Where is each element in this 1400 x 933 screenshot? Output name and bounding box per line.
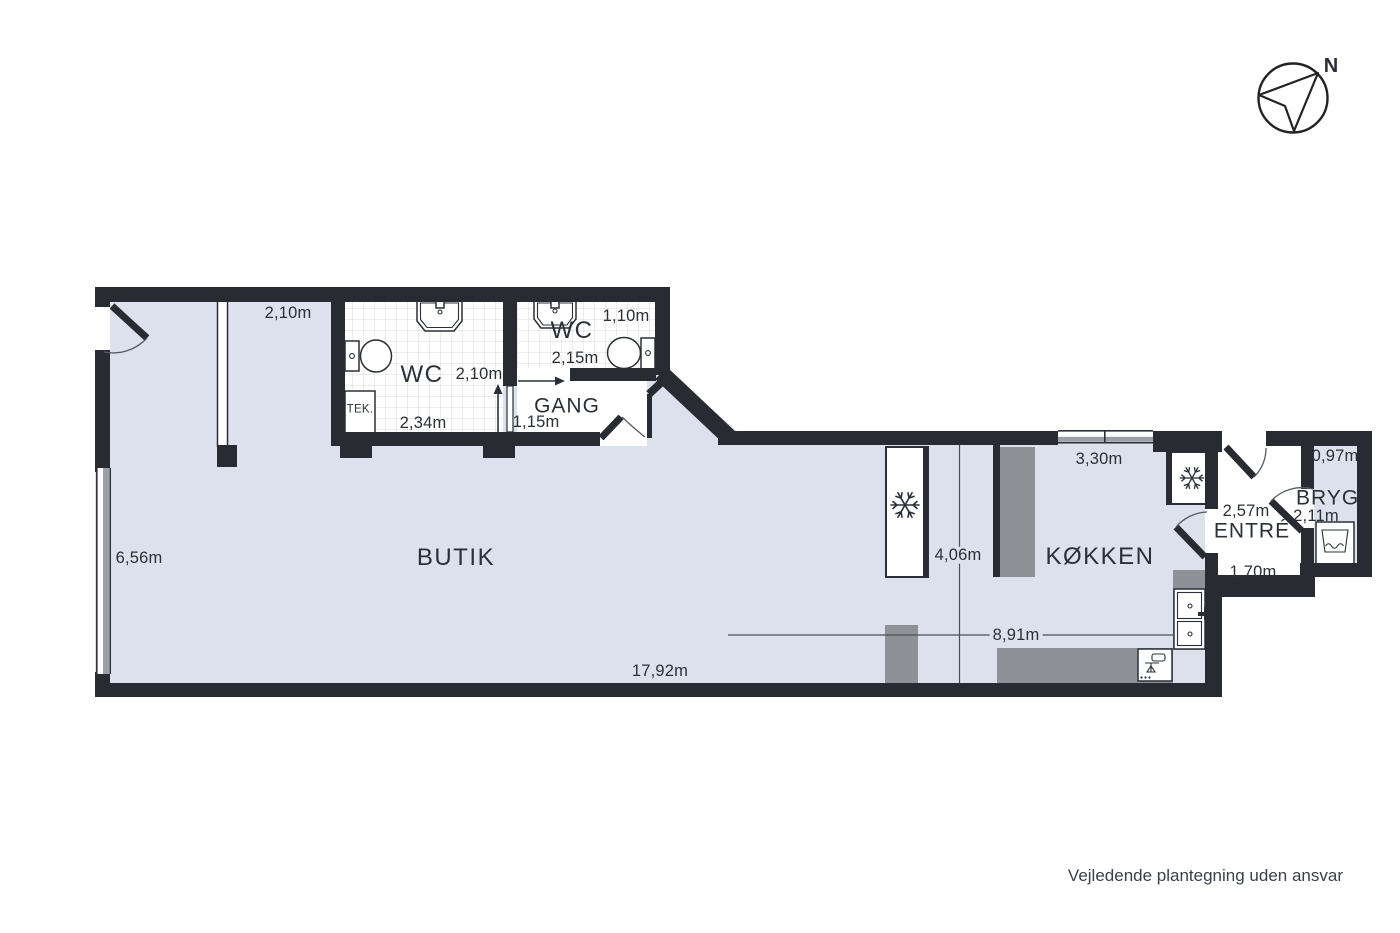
kitchen-window [1058,430,1153,444]
kitchen-partition-wall [993,442,1000,577]
pillar-b [483,446,515,458]
wc2-right-wall [655,287,670,375]
pillar-a [340,446,372,458]
floorplan-page: 2,10m WC 2,10m 2,34m TEK. WC 1,10m 2,15m… [0,0,1400,933]
room-label-bryg: BRYG. [1296,488,1366,509]
left-wall-top [95,287,110,307]
dim-entre-width: 2,57m [1223,503,1270,520]
gang-door-jamb [647,394,652,438]
kitchen-top-wall [718,431,1058,445]
compass-north-label: N [1324,56,1338,76]
butik-entry-opening [95,306,110,352]
dim-total-width: 17,92m [632,663,688,680]
left-wall-mid [95,350,110,472]
dim-entre-depth: 1,70m [1230,564,1277,581]
wc2-bottom-wall [570,368,656,381]
compass [1259,64,1328,133]
disclaimer-text: Vejledende plantegning uden ansvar [1068,866,1343,886]
freezer [886,447,928,577]
room-label-entre: ENTRÉ [1214,521,1290,542]
dim-bryg-door: 0,97m [1312,448,1359,465]
dim-wc1-depth: 2,10m [456,366,503,383]
washing-machine [1316,522,1354,564]
room-label-wc2: WC [551,319,594,343]
wc2-toilet [608,338,656,370]
room-label-butik: BUTIK [417,546,495,570]
dim-wc2-door: 1,10m [603,308,650,325]
butik-partition-glass [218,299,228,446]
butik-partition-pillar [217,445,237,467]
kitchen-partition-block [1000,447,1035,577]
wc1-left-wall [331,299,345,446]
room-label-kokken: KØKKEN [1045,545,1154,569]
bottom-wall [95,683,1222,697]
wc1-toilet [345,340,392,372]
dim-kitchen-window: 3,30m [1076,451,1123,468]
floorplan-drawing [0,0,1400,933]
butik-counter-block [885,625,918,683]
top-wall [95,287,670,302]
dim-mid-width: 8,91m [990,627,1043,644]
left-window [96,468,111,674]
dim-bryg-width: 2,11m [1293,508,1339,525]
entre-entry-opening [1222,431,1266,446]
dim-wc1-width: 2,34m [400,415,447,432]
dim-partition-top: 2,10m [265,305,312,322]
kitchen-sink [1174,589,1208,649]
wc-mid-wall [503,300,517,386]
bryg-bottom-wall [1300,563,1372,577]
kitchen-entre-wall-top [1205,446,1218,509]
entre-bryg-wall-bottom [1301,528,1314,563]
kitchen-entre-wall-bottom [1205,553,1218,575]
room-label-tek: TEK. [347,404,374,416]
dim-left-wall: 6,56m [116,550,163,567]
dim-wc2-width: 2,15m [552,350,599,367]
room-label-wc1: WC [401,363,444,387]
wc-bottom-wall [340,432,600,446]
stove [1138,649,1172,681]
wc1-sink [417,300,462,331]
dim-gang-width: 1,15m [513,414,560,431]
dim-kitchen-depth: 4,06m [932,547,985,564]
